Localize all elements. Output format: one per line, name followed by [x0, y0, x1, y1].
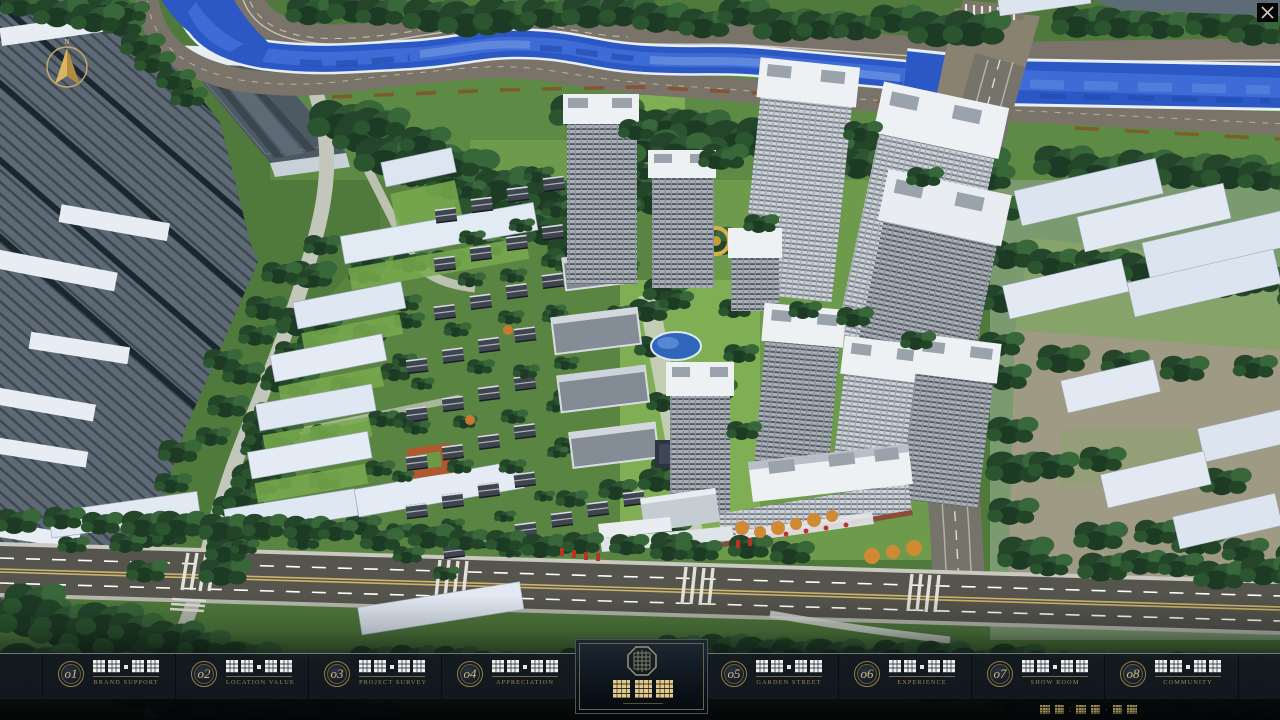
svg-text:N: N: [64, 38, 69, 46]
